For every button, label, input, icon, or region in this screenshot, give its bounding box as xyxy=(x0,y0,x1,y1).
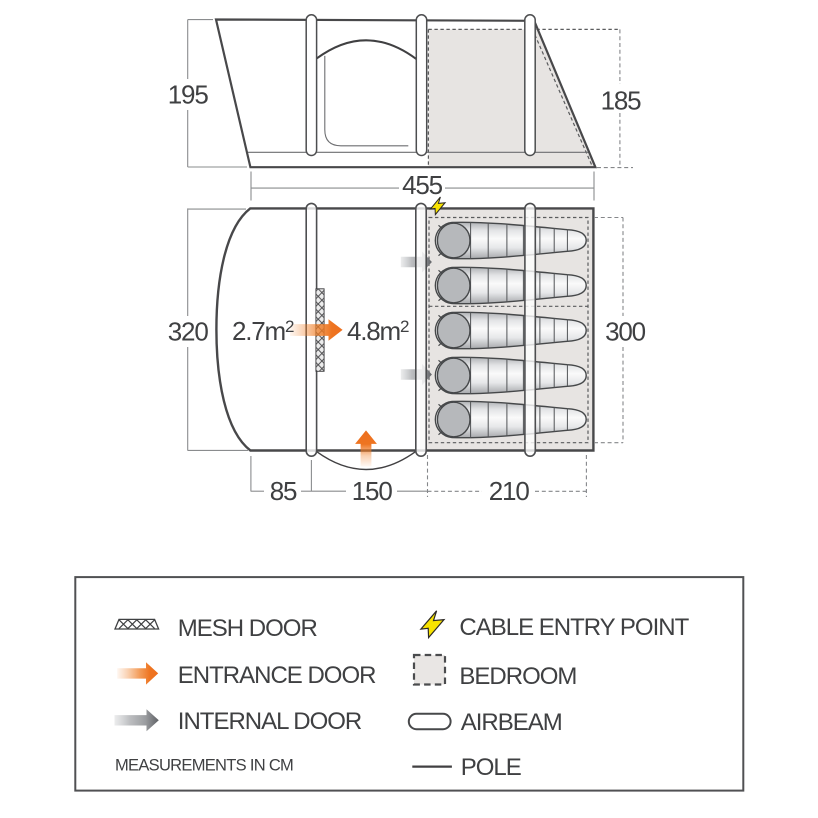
svg-text:85: 85 xyxy=(270,476,297,506)
svg-text:BEDROOM: BEDROOM xyxy=(459,663,576,690)
svg-text:195: 195 xyxy=(168,80,209,110)
svg-text:POLE: POLE xyxy=(461,754,521,781)
svg-text:INTERNAL DOOR: INTERNAL DOOR xyxy=(178,708,362,735)
svg-text:4.8m2: 4.8m2 xyxy=(347,316,409,346)
svg-text:300: 300 xyxy=(605,317,646,347)
svg-text:MESH DOOR: MESH DOOR xyxy=(178,615,318,642)
svg-text:185: 185 xyxy=(601,86,642,116)
svg-text:150: 150 xyxy=(352,476,393,506)
svg-text:2.7m2: 2.7m2 xyxy=(232,316,294,346)
svg-text:MEASUREMENTS IN CM: MEASUREMENTS IN CM xyxy=(115,757,293,775)
svg-text:ENTRANCE DOOR: ENTRANCE DOOR xyxy=(178,662,376,689)
svg-text:455: 455 xyxy=(402,170,443,200)
svg-text:CABLE ENTRY POINT: CABLE ENTRY POINT xyxy=(459,614,689,641)
svg-text:320: 320 xyxy=(168,317,209,347)
svg-text:AIRBEAM: AIRBEAM xyxy=(461,709,562,736)
svg-text:210: 210 xyxy=(489,476,530,506)
